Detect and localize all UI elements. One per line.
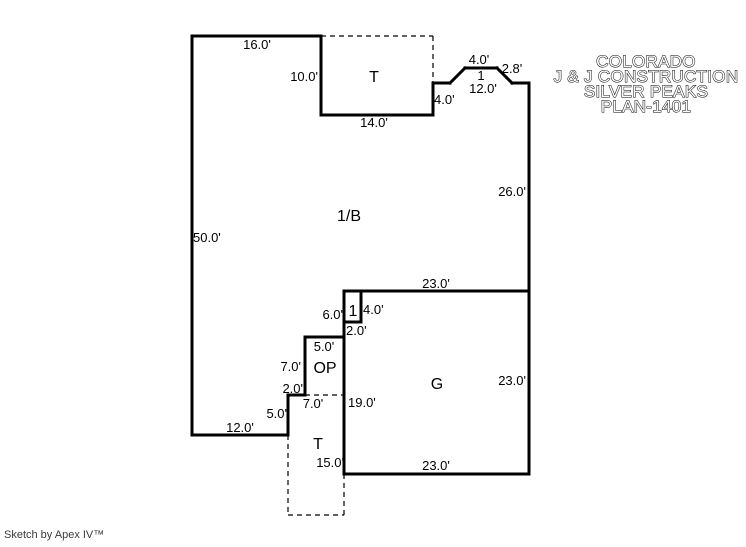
floor-plan-sketch: 16.0'10.0'14.0'4.0'2.8'112.0'4.0'26.0'50… [0,0,746,547]
dimension-label: 4.0' [469,52,490,67]
dimension-label: 23.0' [498,373,526,388]
dimension-label: 23.0' [422,458,450,473]
dimension-label: 10.0' [290,69,318,84]
dimension-label: 4.0' [363,302,384,317]
room-label: 1 [349,303,358,320]
wall-segment [450,68,465,83]
dimension-label: 5.0' [314,339,335,354]
dimension-label: 4.0' [434,92,455,107]
walls-layer [192,36,529,515]
dimension-label: 6.0' [322,307,343,322]
dimension-label: 7.0' [280,359,301,374]
dimension-label: 23.0' [422,276,450,291]
dimension-label: 12.0' [226,420,254,435]
dimension-label: 50.0' [193,230,221,245]
dimension-label: 12.0' [469,81,497,96]
dimension-label: 2.8' [502,61,523,76]
apex-credit: Sketch by Apex IV™ [4,529,104,541]
dimension-label: 5.0' [266,406,287,421]
room-label: 1/B [337,208,361,225]
room-label: OP [313,360,336,377]
room-label: T [369,69,379,86]
labels-layer: 16.0'10.0'14.0'4.0'2.8'112.0'4.0'26.0'50… [193,37,526,473]
sketch-canvas: 16.0'10.0'14.0'4.0'2.8'112.0'4.0'26.0'50… [0,0,746,547]
dimension-label: 2.0' [346,323,367,338]
dimension-label: 19.0' [348,395,376,410]
dimension-label: 15.0' [316,455,344,470]
room-label: G [431,376,443,393]
dimension-label: 26.0' [498,184,526,199]
dimension-label: 2.0' [282,381,303,396]
dimension-label: 14.0' [360,115,388,130]
plan-title-block: COLORADO J & J CONSTRUCTION SILVER PEAKS… [554,52,739,116]
plan-title-line-4: PLAN-1401 [601,97,692,116]
dimension-label: 16.0' [243,37,271,52]
room-label: T [313,436,323,453]
dimension-label: 7.0' [303,396,324,411]
